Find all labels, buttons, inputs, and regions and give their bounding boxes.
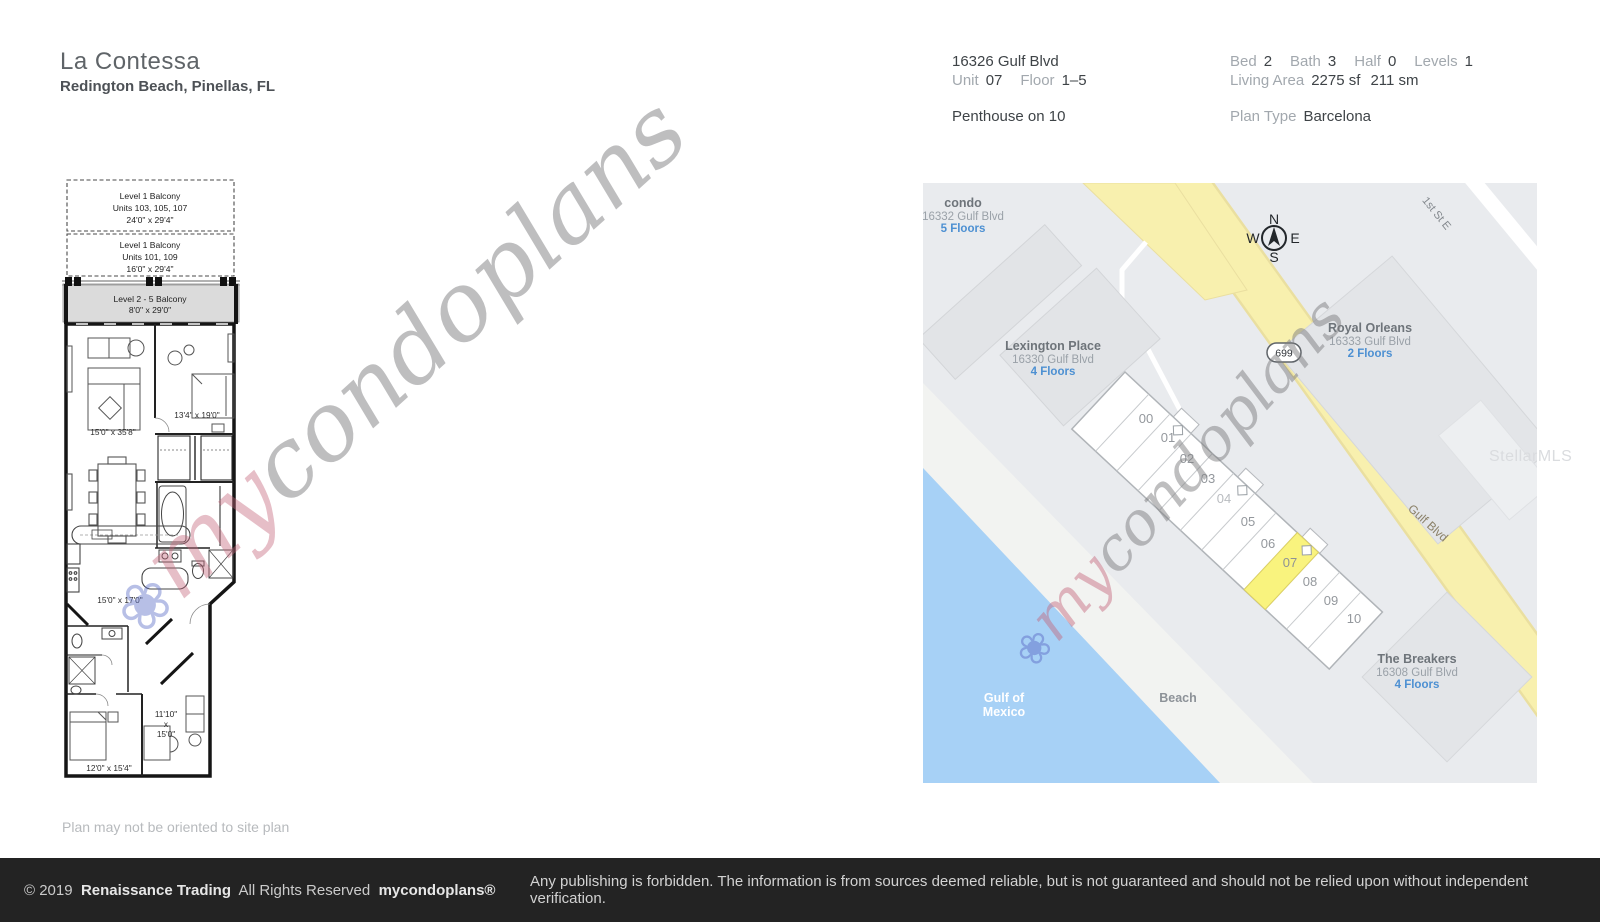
lexington-name: Lexington Place bbox=[1005, 339, 1101, 353]
living-area-line: Living Area2275 sf211 sm bbox=[1230, 71, 1473, 90]
unit-label-08[interactable]: 08 bbox=[1303, 574, 1317, 589]
footer-copyright: © 2019 Renaissance Trading All Rights Re… bbox=[24, 882, 495, 899]
route-699-text: 699 bbox=[1275, 348, 1293, 360]
orientation-note: Plan may not be oriented to site plan bbox=[62, 819, 289, 835]
unit-floor-line: Unit07Floor1–5 bbox=[952, 71, 1087, 90]
unit-label-07[interactable]: 07 bbox=[1283, 555, 1297, 570]
floor-label: Floor bbox=[1020, 72, 1054, 89]
compass-w: W bbox=[1246, 230, 1260, 246]
den-dimensions-1: 11'10" bbox=[155, 709, 177, 719]
breakers-name: The Breakers bbox=[1377, 652, 1456, 666]
plan-type-value: Barcelona bbox=[1303, 108, 1371, 125]
unit-label-00[interactable]: 00 bbox=[1139, 411, 1153, 426]
condo-floors[interactable]: 5 Floors bbox=[941, 223, 986, 235]
brand-name: mycondoplans® bbox=[379, 882, 496, 899]
compass-s: S bbox=[1269, 249, 1278, 265]
copyright-year: © 2019 bbox=[24, 882, 73, 899]
specs-block: Bed2Bath3Half0Levels1 Living Area2275 sf… bbox=[1230, 52, 1473, 126]
balcony25-line1: Level 2 - 5 Balcony bbox=[113, 294, 187, 304]
royal-orleans-floors[interactable]: 2 Floors bbox=[1348, 348, 1393, 360]
breakers-address: 16308 Gulf Blvd bbox=[1376, 667, 1458, 679]
living-area-sm: 211 sm bbox=[1370, 72, 1418, 89]
unit-label-01[interactable]: 01 bbox=[1161, 430, 1175, 445]
unit-label-03[interactable]: 03 bbox=[1201, 471, 1215, 486]
bath-value: 3 bbox=[1328, 53, 1336, 70]
rights-text: All Rights Reserved bbox=[239, 882, 371, 899]
unit-label-06[interactable]: 06 bbox=[1261, 536, 1275, 551]
balcony2-line1: Level 1 Balcony bbox=[120, 240, 181, 250]
bedroom2-dimensions: 12'0" x 15'4" bbox=[86, 763, 132, 773]
route-699-badge: 699 bbox=[1267, 343, 1301, 362]
floor-plan: Level 1 Balcony Units 103, 105, 107 24'0… bbox=[62, 178, 240, 792]
company-name: Renaissance Trading bbox=[81, 882, 231, 899]
breakers-floors[interactable]: 4 Floors bbox=[1395, 679, 1440, 691]
bed-bath-line: Bed2Bath3Half0Levels1 bbox=[1230, 52, 1473, 71]
royal-orleans-address: 16333 Gulf Blvd bbox=[1329, 336, 1411, 348]
living-area-label: Living Area bbox=[1230, 72, 1304, 89]
watermark-condoplans: condoplans bbox=[228, 76, 708, 524]
unit-label-09[interactable]: 09 bbox=[1324, 593, 1338, 608]
bath-label: Bath bbox=[1290, 53, 1321, 70]
kitchen-dimensions: 15'0" x 17'0" bbox=[97, 595, 143, 605]
stellar-mls-watermark: StellarMLS bbox=[1489, 448, 1572, 466]
page-title: La Contessa bbox=[60, 48, 200, 76]
balcony1-line1: Level 1 Balcony bbox=[120, 191, 181, 201]
bed-label: Bed bbox=[1230, 53, 1257, 70]
levels-label: Levels bbox=[1414, 53, 1457, 70]
lexington-floors[interactable]: 4 Floors bbox=[1031, 366, 1076, 378]
site-map: 00 01 02 03 04 05 06 07 08 09 10 condo 1… bbox=[923, 183, 1537, 783]
master-dimensions: 13'4" x 19'0" bbox=[174, 410, 220, 420]
unit-label-04[interactable]: 04 bbox=[1217, 491, 1231, 506]
street-address: 16326 Gulf Blvd bbox=[952, 52, 1087, 71]
bed-value: 2 bbox=[1264, 53, 1272, 70]
living-dimensions: 15'0" x 35'8" bbox=[90, 427, 136, 437]
half-label: Half bbox=[1354, 53, 1381, 70]
levels-value: 1 bbox=[1465, 53, 1473, 70]
condo-plan-page: La Contessa Redington Beach, Pinellas, F… bbox=[0, 0, 1600, 922]
plan-type-label: Plan Type bbox=[1230, 108, 1296, 125]
compass-n: N bbox=[1269, 211, 1279, 227]
lexington-address: 16330 Gulf Blvd bbox=[1012, 354, 1094, 366]
balcony1-line3: 24'0" x 29'4" bbox=[126, 215, 173, 225]
gulf-of-mexico-label-1: Gulf of bbox=[984, 691, 1025, 705]
unit-label-10[interactable]: 10 bbox=[1347, 611, 1361, 626]
compass-e: E bbox=[1290, 230, 1299, 246]
penthouse-note: Penthouse on 10 bbox=[952, 107, 1087, 126]
unit-label-02[interactable]: 02 bbox=[1180, 451, 1194, 466]
address-block: 16326 Gulf Blvd Unit07Floor1–5 Penthouse… bbox=[952, 52, 1087, 126]
beach-label: Beach bbox=[1159, 691, 1197, 705]
living-area-sf: 2275 sf bbox=[1311, 72, 1360, 89]
half-value: 0 bbox=[1388, 53, 1396, 70]
page-subtitle: Redington Beach, Pinellas, FL bbox=[60, 78, 275, 95]
den-dimensions-3: 15'0" bbox=[157, 729, 175, 739]
condo-address: 16332 Gulf Blvd bbox=[923, 211, 1004, 223]
condo-name: condo bbox=[944, 196, 982, 210]
unit-value: 07 bbox=[986, 72, 1003, 89]
footer-disclaimer: Any publishing is forbidden. The informa… bbox=[530, 873, 1570, 907]
balcony25-line2: 8'0" x 29'0" bbox=[129, 305, 171, 315]
balcony2-line3: 16'0" x 29'4" bbox=[126, 264, 173, 274]
plan-type-line: Plan TypeBarcelona bbox=[1230, 107, 1473, 126]
gulf-of-mexico-label-2: Mexico bbox=[983, 705, 1026, 719]
royal-orleans-name: Royal Orleans bbox=[1328, 321, 1412, 335]
floor-value: 1–5 bbox=[1062, 72, 1087, 89]
footer-bar: © 2019 Renaissance Trading All Rights Re… bbox=[0, 858, 1600, 922]
balcony2-line2: Units 101, 109 bbox=[122, 252, 178, 262]
balcony1-line2: Units 103, 105, 107 bbox=[113, 203, 188, 213]
unit-label: Unit bbox=[952, 72, 979, 89]
unit-label-05[interactable]: 05 bbox=[1241, 514, 1255, 529]
